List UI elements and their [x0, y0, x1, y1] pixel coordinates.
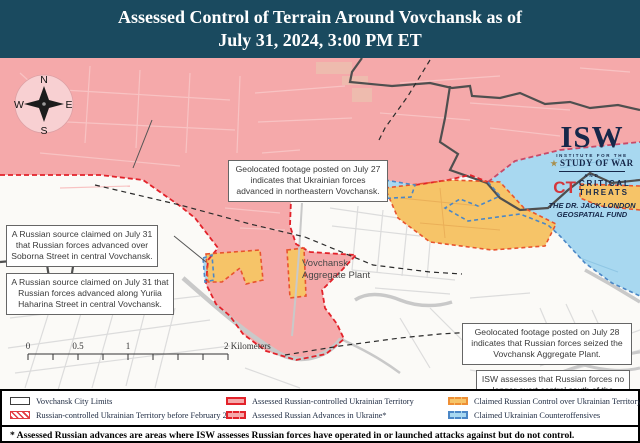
- threats-label: THREATS: [579, 188, 629, 197]
- scale-tick-1: 1: [126, 341, 131, 351]
- claimed-ukrainian-swatch-icon: [448, 411, 468, 419]
- compass-s-label: S: [40, 125, 47, 137]
- fund-line2: GEOSPATIAL FUND: [545, 210, 639, 219]
- isw-ct-logo: ISW INSTITUTE FOR THE ★STUDY OF WAR AND …: [545, 122, 639, 219]
- city-limits-swatch-icon: [10, 397, 30, 405]
- legend-label: Vovchansk City Limits: [36, 397, 112, 406]
- scale-tick-0: 0: [26, 341, 31, 351]
- claimed-russian-swatch-icon: [448, 397, 468, 405]
- compass-e-label: E: [65, 99, 72, 111]
- legend-column-1: Vovchansk City Limits Russian-controlled…: [10, 395, 226, 422]
- isw-study-of-war-text: ★STUDY OF WAR: [545, 158, 639, 168]
- title-line-1: Assessed Control of Terrain Around Vovch…: [0, 6, 640, 29]
- geospatial-fund-text: THE DR. JACK LONDON GEOSPATIAL FUND: [545, 201, 639, 219]
- legend-column-2: Assessed Russian-controlled Ukrainian Te…: [226, 395, 448, 422]
- scale-tick-2: 2 Kilometers: [224, 341, 271, 351]
- isw-map-page: Assessed Control of Terrain Around Vovch…: [0, 0, 640, 443]
- callout-july27-ukrainian-advance: Geolocated footage posted on July 27 ind…: [228, 160, 388, 202]
- logo-divider: [559, 171, 625, 172]
- russian-advances-swatch-icon: [226, 411, 246, 419]
- title-line-2: July 31, 2024, 3:00 PM ET: [0, 29, 640, 52]
- footnote: * Assessed Russian advances are areas wh…: [2, 427, 638, 441]
- map-area: N E S W Vovchansk Aggregate Plant 0 0.5 …: [0, 58, 640, 390]
- legend-item-russian-advances: Assessed Russian Advances in Ukraine*: [226, 409, 448, 422]
- legend-label: Claimed Russian Control over Ukrainian T…: [474, 397, 640, 406]
- legend-item-pre-feb24: Russian-controlled Ukrainian Territory b…: [10, 409, 226, 422]
- russian-controlled-swatch-icon: [226, 397, 246, 405]
- fund-line1: THE DR. JACK LONDON: [545, 201, 639, 210]
- legend-label: Russian-controlled Ukrainian Territory b…: [36, 411, 231, 420]
- critical-threats-text: CRITICAL THREATS: [579, 179, 631, 197]
- compass-n-label: N: [40, 74, 48, 86]
- callout-aggregate-plant-seized: Geolocated footage posted on July 28 ind…: [462, 323, 632, 365]
- legend-label: Claimed Ukrainian Counteroffensives: [474, 411, 600, 420]
- legend-item-claimed-russian: Claimed Russian Control over Ukrainian T…: [448, 395, 640, 408]
- scale-tick-05: 0.5: [72, 341, 84, 351]
- legend-item-russian-controlled: Assessed Russian-controlled Ukrainian Te…: [226, 395, 448, 408]
- study-of-war-label: STUDY OF WAR: [560, 158, 634, 168]
- pre-feb24-swatch-icon: [10, 411, 30, 419]
- legend-column-3: Claimed Russian Control over Ukrainian T…: [448, 395, 640, 422]
- legend-footnote-panel: Vovchansk City Limits Russian-controlled…: [0, 389, 640, 443]
- title-bar: Assessed Control of Terrain Around Vovch…: [0, 0, 640, 58]
- legend-label: Assessed Russian-controlled Ukrainian Te…: [252, 397, 414, 406]
- critical-threats-logo: CT CRITICAL THREATS: [545, 179, 639, 197]
- ct-monogram-icon: CT: [553, 180, 576, 196]
- map-legend: Vovchansk City Limits Russian-controlled…: [2, 391, 638, 427]
- plant-label-line1: Vovchansk: [302, 258, 348, 269]
- compass-w-label: W: [14, 99, 24, 111]
- legend-label: Assessed Russian Advances in Ukraine*: [252, 411, 387, 420]
- plant-label-line2: Aggregate Plant: [302, 270, 370, 281]
- legend-item-city-limits: Vovchansk City Limits: [10, 395, 226, 408]
- callout-soborna-street: A Russian source claimed on July 31 that…: [6, 225, 158, 267]
- callout-haharina-street: A Russian source claimed on July 31 that…: [6, 273, 174, 315]
- legend-item-claimed-ukrainian: Claimed Ukrainian Counteroffensives: [448, 409, 640, 422]
- isw-wordmark: ISW: [545, 122, 639, 152]
- critical-label: CRITICAL: [579, 179, 631, 188]
- isw-star-icon: ★: [550, 159, 558, 168]
